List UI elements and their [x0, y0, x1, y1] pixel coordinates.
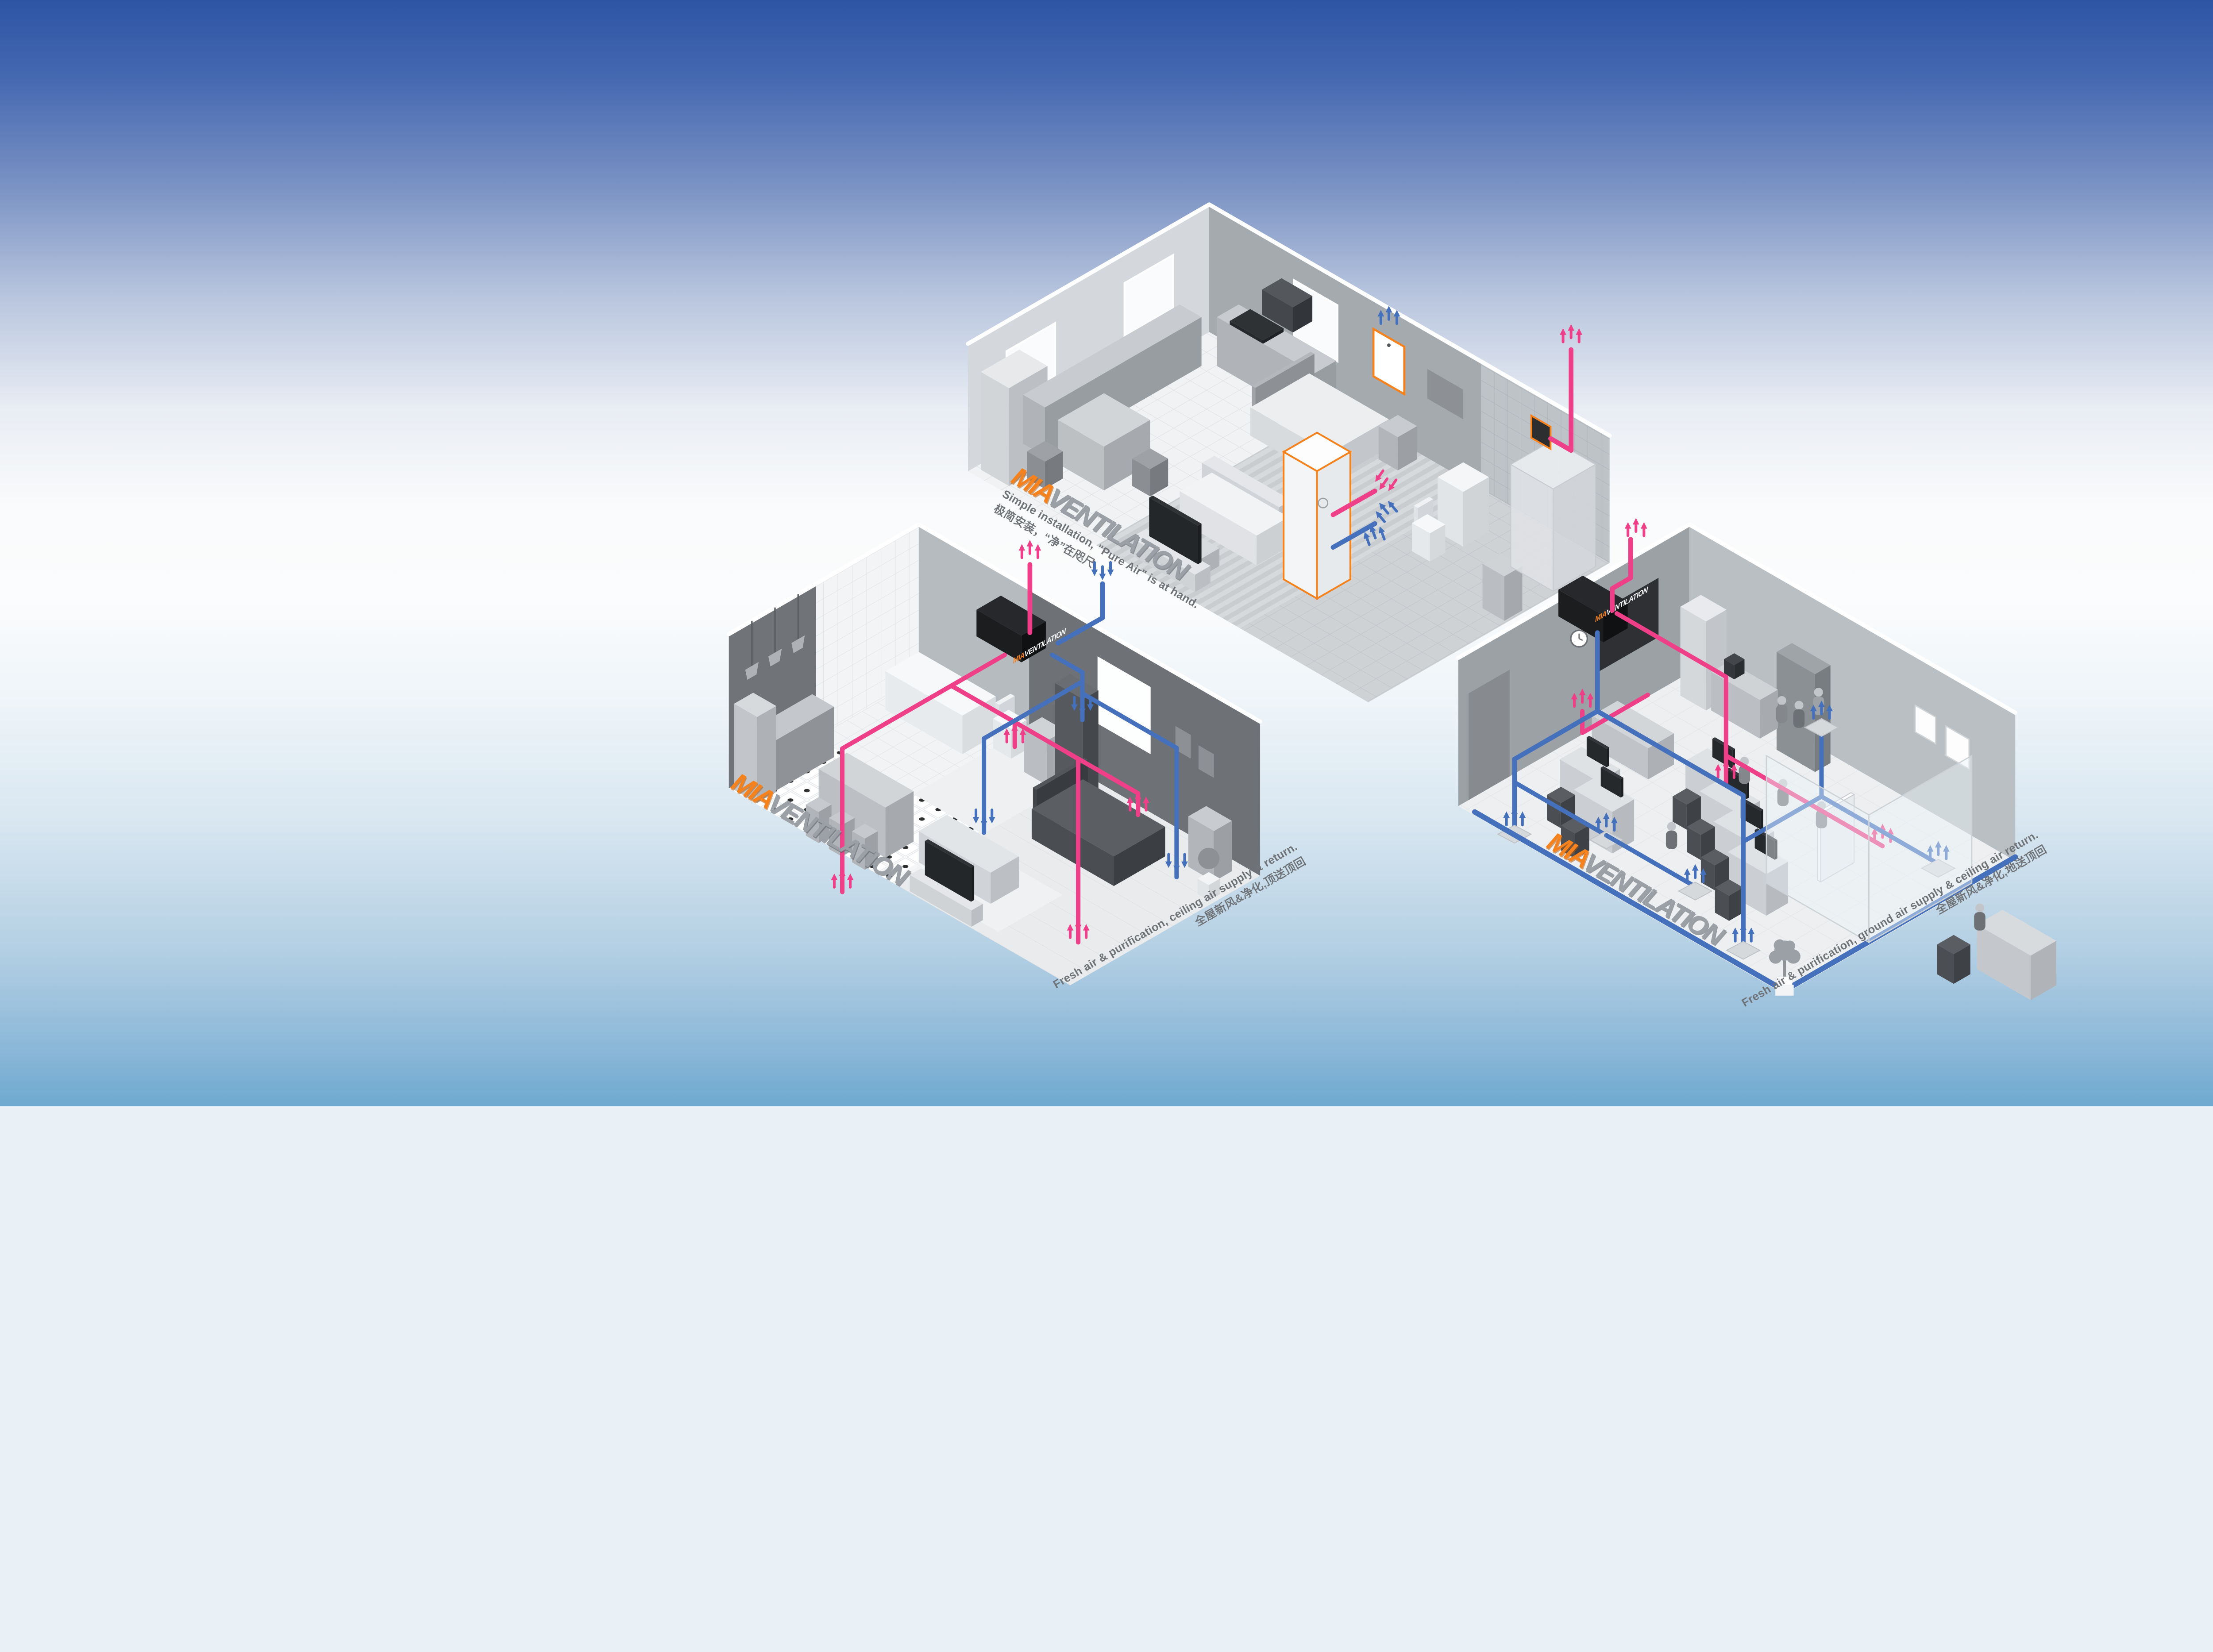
office-chair	[1687, 827, 1701, 860]
office-chair	[1937, 935, 1970, 955]
brand-logo: MIAVENTILATION	[1543, 828, 1727, 950]
bed-headboard	[1037, 760, 1088, 840]
office-room	[1458, 524, 2056, 1000]
office-scene-illustration: MIAVENTILATION	[1375, 516, 2095, 1019]
office-chair	[1715, 857, 1729, 890]
glass-partition	[1766, 756, 1869, 943]
monitor	[1607, 747, 1609, 767]
apartment-text-block: MIAVENTILATION Simple installation, "Pur…	[991, 462, 1216, 628]
office-chair	[1673, 788, 1701, 805]
bed-headboard	[1033, 758, 1088, 790]
kitchen-counter	[735, 694, 834, 751]
sofa	[919, 831, 991, 904]
office-logo-block: MIAVENTILATION	[1543, 828, 1727, 950]
office-chair	[1937, 944, 1954, 984]
supply-duct	[1582, 695, 1648, 733]
monitor	[1741, 800, 1761, 830]
supply-duct	[1550, 350, 1571, 451]
monitor	[1601, 766, 1623, 779]
bed	[1032, 779, 1165, 856]
office-chair	[1561, 795, 1575, 828]
supply-duct	[1067, 752, 1078, 942]
wall-tv	[1600, 578, 1658, 671]
office-desk	[1598, 769, 1620, 823]
office-door	[1469, 670, 1510, 800]
office-chair	[1547, 787, 1575, 803]
monitor	[1621, 778, 1623, 797]
supply-duct	[1726, 756, 1883, 846]
office-right-wall	[1689, 524, 2015, 861]
office-desk	[1574, 777, 1634, 812]
pendant-lamp-icon	[791, 635, 805, 653]
return-duct	[1515, 782, 1607, 836]
window	[1006, 323, 1055, 404]
office-caption-block: Fresh air & purification, ground air sup…	[1715, 827, 2050, 1040]
brand-logo-ventilation: VENTILATION	[1578, 847, 1728, 950]
erv-unit-box	[1022, 622, 1046, 662]
sofa	[1257, 517, 1289, 565]
toilet	[1430, 524, 1446, 562]
supply-arrows-icon	[1560, 324, 1582, 342]
person-figure	[1777, 779, 1789, 806]
kitchen-wall	[968, 204, 1209, 471]
monitor	[1712, 737, 1735, 750]
office-desk	[1714, 809, 1774, 844]
toilet-tank	[995, 703, 999, 750]
kitchen-counter	[1315, 361, 1336, 422]
bean-bag	[1705, 772, 1727, 782]
pendant-lamp-icon	[768, 649, 782, 666]
window	[1125, 255, 1173, 336]
floor-grille	[1805, 719, 1838, 736]
bed	[1330, 420, 1389, 482]
wall-top-cap	[1689, 524, 2015, 712]
office-left-wall	[1458, 524, 1689, 806]
office-desk	[1752, 831, 1774, 885]
bathroom-wall	[1481, 362, 1610, 563]
office-chair	[1715, 879, 1743, 896]
office-caption-en: Fresh air & purification, ground air sup…	[1715, 827, 2041, 1025]
office-desk	[1560, 759, 1598, 823]
monitor	[1755, 828, 1777, 841]
pantry-fridge	[1706, 610, 1726, 711]
toilet-tank	[1414, 506, 1418, 553]
wall-art	[1427, 369, 1463, 420]
executive-desk	[1977, 910, 2056, 956]
return-duct	[1821, 797, 1938, 864]
supply-duct	[1015, 722, 1138, 815]
return-arrows-icon	[1503, 807, 1526, 825]
supply-arrows-icon	[831, 870, 854, 887]
kitchen-counter	[1023, 304, 1202, 408]
supply-arrows-icon	[1625, 518, 1647, 535]
return-duct	[984, 682, 1082, 833]
kitchen-counter	[1023, 395, 1045, 456]
cooktop	[1263, 328, 1284, 344]
return-duct	[1333, 524, 1375, 547]
tall-cabinet	[1055, 674, 1099, 699]
office-chair	[1729, 887, 1743, 920]
toilet	[1412, 514, 1445, 534]
monitor	[1761, 809, 1763, 829]
monitor	[1732, 749, 1735, 769]
chair	[1027, 441, 1063, 462]
bookshelf	[1815, 665, 1831, 772]
person-figure	[1974, 904, 1985, 931]
supply-duct	[951, 655, 1014, 747]
coffee-machine	[1724, 653, 1744, 665]
refrigerator	[981, 350, 1048, 388]
bed-headboard	[1033, 787, 1037, 840]
kitchen-wall	[729, 584, 816, 788]
kitchen-counter	[1045, 317, 1202, 456]
office-chair	[1715, 887, 1729, 920]
erv-unit-box	[976, 610, 1021, 662]
return-arrows-icon	[1360, 521, 1388, 546]
bathroom-wall	[816, 524, 919, 738]
dining-table	[1104, 420, 1150, 490]
picture-frame	[1176, 726, 1191, 759]
pantry-fridge	[1681, 595, 1727, 621]
chair	[1150, 459, 1168, 497]
coffee-machine	[1734, 659, 1744, 680]
supply-arrows-icon	[1003, 724, 1026, 742]
office-chair	[1673, 797, 1687, 830]
floor-fresh-air-unit	[1284, 433, 1350, 471]
refrigerator	[981, 372, 1009, 486]
monitor	[1746, 779, 1749, 799]
erv-unit-box	[976, 596, 1046, 635]
supply-arrows-icon	[1871, 824, 1894, 842]
picture-frame	[1199, 745, 1214, 778]
monitor	[1755, 830, 1775, 860]
picture-frame	[1915, 705, 1935, 744]
floor-fresh-air-unit	[1284, 452, 1317, 598]
picture-frame	[1946, 726, 1969, 769]
television	[1198, 524, 1202, 564]
supply-arrows-icon	[1715, 760, 1737, 778]
chair	[1132, 448, 1168, 469]
floor-grille	[1590, 831, 1623, 849]
pendant-lamp-icon	[745, 662, 759, 680]
person-figure	[1793, 701, 1804, 728]
bedroom-wall	[1209, 204, 1481, 489]
television	[1149, 496, 1201, 526]
office-desk	[1612, 799, 1634, 853]
wall-purifier-device	[1373, 329, 1404, 394]
return-duct	[1743, 723, 1822, 842]
sofa-back	[1202, 463, 1279, 552]
washing-machine	[1438, 462, 1489, 492]
duct-network	[1475, 633, 2015, 991]
plant	[1198, 848, 1219, 869]
office-chair	[1701, 857, 1715, 890]
toilet	[1412, 523, 1430, 562]
person-figure	[1816, 801, 1827, 828]
pantry-cabinet	[1711, 672, 1760, 739]
television	[925, 839, 974, 867]
hall-wall	[919, 524, 1029, 742]
office-chair	[1687, 819, 1715, 835]
return-arrows-icon	[1071, 697, 1094, 715]
window	[1294, 280, 1338, 362]
erv-unit-box	[1558, 590, 1604, 643]
return-arrows-icon	[1165, 854, 1188, 872]
monitor	[1712, 739, 1732, 769]
dining-table	[1058, 393, 1150, 447]
bedroom-floor	[896, 775, 1260, 985]
office-desk	[1766, 862, 1788, 916]
bookshelf	[1777, 643, 1831, 674]
monitor	[1727, 768, 1749, 781]
sofa	[991, 856, 1019, 904]
chair	[1132, 459, 1150, 497]
toilet	[1011, 720, 1027, 759]
office-chair	[1701, 827, 1715, 860]
kitchen-counter	[1217, 317, 1314, 422]
bathtub	[885, 671, 962, 754]
brand-logo: MIAVENTILATION	[727, 768, 912, 890]
home-ceiling-scene-illustration: MIAVENTILATION	[708, 516, 1351, 1008]
range-hood	[1293, 296, 1312, 332]
erv-unit-box	[1558, 576, 1628, 616]
window	[1099, 658, 1150, 753]
sofa	[1180, 473, 1288, 535]
toilet	[993, 719, 1011, 759]
shower-cabin	[1511, 465, 1553, 591]
office-floor	[1458, 673, 2015, 994]
person-figure	[1739, 757, 1750, 784]
erv-unit-box	[1604, 601, 1628, 642]
return-arrows-icon	[1684, 864, 1707, 882]
executive-desk	[1977, 924, 2031, 1000]
hall-floor	[914, 735, 1086, 834]
wall-top-cap	[968, 204, 1209, 344]
office-desk	[1700, 778, 1760, 813]
kitchen-island	[819, 753, 914, 808]
toilet	[993, 710, 1026, 729]
floor-grille	[1498, 825, 1531, 843]
bathtub	[962, 697, 995, 755]
return-arrows-icon	[1377, 306, 1400, 323]
kitchen-counter	[1217, 304, 1336, 374]
range-hood	[1262, 278, 1312, 308]
floor-grille	[1727, 941, 1760, 959]
exhaust-vent-device	[1531, 416, 1551, 449]
bean-bag	[1686, 761, 1708, 771]
office-desk	[1685, 748, 1746, 783]
office-desk	[1738, 801, 1760, 855]
bath-vanity	[1483, 554, 1523, 577]
ventilation-poster: MIAVENTILATION MIAVENTILATION MIAVENTILA…	[0, 0, 2213, 1106]
bookshelf	[1777, 652, 1815, 772]
duct-network	[831, 655, 1188, 943]
dresser	[1214, 821, 1232, 882]
bed-headboard	[1252, 352, 1314, 388]
lounge-sofa	[1592, 701, 1674, 748]
television	[925, 841, 971, 901]
shower-cabin	[1511, 440, 1595, 489]
whiteboard	[1818, 812, 1821, 882]
wall-clock-icon	[1571, 630, 1587, 647]
apartment-room	[968, 204, 1610, 702]
erv-label-ventilation: VENTILATION	[1025, 626, 1066, 659]
bed	[1114, 827, 1165, 886]
return-arrows-icon	[1595, 813, 1618, 830]
sofa	[1180, 491, 1257, 565]
bathroom-floor	[816, 678, 1016, 794]
whiteboard	[1821, 794, 1854, 882]
return-duct	[1515, 633, 1597, 830]
tv-stand	[910, 875, 972, 927]
supply-duct	[1617, 613, 1726, 784]
nightstand	[1398, 426, 1417, 470]
return-arrows-icon	[973, 810, 995, 828]
home-caption-en: Fresh air & purification, ceiling air su…	[1036, 839, 1301, 1001]
office-chair	[1701, 849, 1729, 865]
person-figure	[1666, 822, 1677, 849]
wall-top-cap	[1458, 524, 1689, 658]
office-chair	[1687, 797, 1701, 830]
pantry-cabinet	[1711, 662, 1778, 700]
monitor	[1587, 736, 1609, 749]
tv-stand	[910, 868, 983, 910]
bed	[1250, 374, 1389, 454]
monitor	[1601, 768, 1621, 798]
lounge-sofa	[1648, 733, 1674, 779]
bath-vanity	[1024, 728, 1047, 786]
home-caption-block: Fresh air & purification, ceiling air su…	[1036, 839, 1309, 1016]
monitor	[1727, 769, 1746, 799]
toilet-tank	[1418, 499, 1433, 553]
bathtub	[885, 652, 995, 716]
supply-arrows-icon	[1127, 793, 1149, 810]
wall-top-cap	[1209, 204, 1610, 435]
dresser	[1188, 816, 1214, 882]
tv-stand	[972, 904, 983, 927]
bed-headboard	[1255, 354, 1314, 437]
supply-arrows-icon	[1370, 469, 1399, 496]
person-figure	[1776, 696, 1787, 723]
bed	[1032, 809, 1114, 886]
cooktop	[1230, 309, 1284, 340]
wall-top-cap	[729, 524, 919, 634]
erv-unit-label: MIAVENTILATION	[1013, 626, 1066, 666]
bedroom-wall	[1029, 588, 1260, 876]
office-desk	[1685, 761, 1724, 824]
whiteboard	[1818, 793, 1854, 814]
bed-headboard	[1252, 386, 1255, 437]
office-chair	[1954, 944, 1970, 984]
refrigerator	[734, 693, 776, 717]
washing-machine	[1463, 477, 1489, 547]
office-desk	[1700, 791, 1738, 855]
shower-cabin	[1553, 465, 1596, 591]
nightstand	[1379, 415, 1417, 437]
bath-vanity	[1504, 566, 1523, 621]
bed	[1250, 408, 1330, 481]
erv-label-mia: MIA	[1595, 608, 1607, 624]
erv-label-ventilation: VENTILATION	[1607, 585, 1648, 617]
executive-desk	[2031, 941, 2056, 1000]
return-arrows-icon	[1810, 701, 1833, 718]
office-desk	[1728, 852, 1766, 916]
office-desk	[1560, 747, 1620, 782]
nightstand	[1379, 426, 1398, 470]
supply-arrows-icon	[1067, 920, 1090, 937]
person-figure	[1813, 688, 1824, 715]
bath-vanity	[1024, 717, 1065, 741]
office-caption-zh: 全屋新风&净化,地送顶回	[1723, 841, 2050, 1040]
home-caption-zh: 全屋新风&净化,顶送顶回	[1044, 853, 1309, 1016]
monitor	[1741, 798, 1763, 811]
toilet-tank	[995, 694, 1015, 705]
pantry-fridge	[1681, 607, 1706, 710]
tall-cabinet	[1083, 690, 1099, 800]
rug	[898, 837, 1062, 932]
sofa-back	[1279, 500, 1292, 552]
brand-logo-ventilation: VENTILATION	[763, 788, 913, 891]
return-arrows-icon	[1732, 924, 1754, 941]
dining-table	[1058, 420, 1104, 490]
toilet-tank	[999, 696, 1015, 750]
coffee-machine	[1724, 659, 1734, 680]
dresser	[1188, 806, 1232, 831]
office-desk	[1724, 770, 1746, 824]
lounge-sofa	[1592, 716, 1648, 779]
return-arrows-icon	[1927, 841, 1950, 859]
television	[971, 866, 974, 902]
supply-arrows-icon	[1571, 689, 1594, 706]
toilet-tank	[1414, 497, 1433, 508]
return-duct	[1052, 655, 1082, 720]
return-duct	[1058, 584, 1103, 643]
home-logo-block: MIAVENTILATION	[727, 768, 912, 890]
bath-vanity	[1483, 564, 1504, 621]
erv-unit: MIAVENTILATION	[1558, 518, 1894, 846]
office-desk	[1728, 839, 1788, 874]
monitor	[1775, 840, 1777, 860]
return-duct	[1082, 693, 1176, 877]
erv-label-mia: MIA	[1013, 650, 1025, 666]
sofa	[919, 815, 1019, 873]
tall-cabinet	[1055, 683, 1083, 800]
range-hood	[1262, 289, 1293, 332]
kitchen-island	[885, 791, 914, 858]
return-arrows-icon	[1371, 496, 1400, 524]
bath-vanity	[1047, 731, 1065, 786]
supply-duct	[1333, 491, 1375, 515]
office-chair	[1547, 795, 1561, 828]
monitor	[1587, 737, 1607, 767]
supply-duct	[1612, 539, 1631, 611]
floor-grille	[1679, 882, 1712, 900]
apartment-scene-illustration	[960, 172, 1630, 705]
floor-fresh-air-unit	[1317, 452, 1350, 598]
pantry-cabinet	[1760, 690, 1778, 739]
washing-machine	[1438, 477, 1463, 547]
office-desk	[1714, 822, 1752, 886]
cooktop	[1230, 321, 1263, 344]
erv-unit-label: MIAVENTILATION	[1595, 585, 1648, 624]
sofa-back	[1202, 456, 1292, 508]
bathroom-floor	[1240, 489, 1610, 702]
